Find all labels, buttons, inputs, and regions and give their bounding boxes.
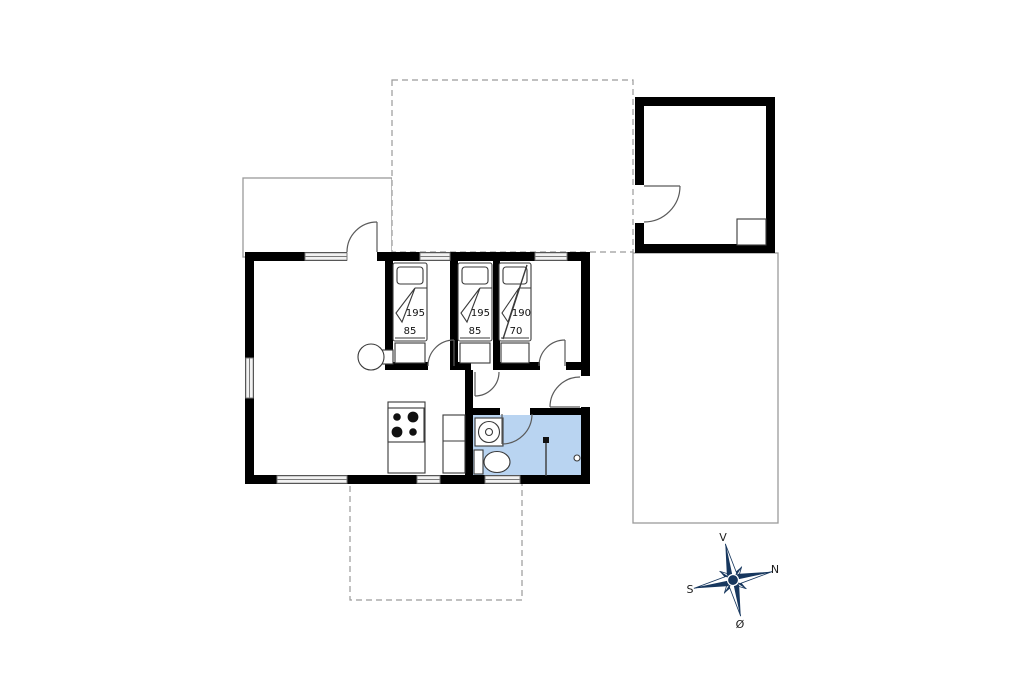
bed1-width-label: 85: [404, 326, 417, 337]
bed-pillow: [462, 267, 488, 284]
washbasin-icon: [475, 418, 503, 446]
terrace-east: [633, 253, 778, 523]
bed-3: 190 70: [499, 263, 531, 363]
annex-wall-west: [635, 97, 644, 253]
cooktop-icon: [388, 408, 424, 442]
kitchen: [388, 402, 465, 473]
annex-door-opening: [634, 185, 645, 223]
bed-pillow: [397, 267, 423, 284]
bed-footboard: [501, 343, 529, 363]
bedroom2-door: [475, 372, 499, 396]
compass-label-west: V: [719, 531, 727, 544]
bed2-length-label: 195: [471, 308, 490, 319]
bed-1: 195 85: [393, 263, 427, 363]
annex-wall-north: [635, 97, 775, 106]
terrace-northwest: [243, 178, 392, 257]
bathroom-door-opening: [500, 408, 530, 415]
floor-drain-icon: [574, 455, 580, 461]
compass-rose: V N S Ø: [686, 531, 780, 631]
compass-label-north: N: [771, 563, 779, 576]
floor-plan-canvas: 195 85 195 85 190 70: [0, 0, 1024, 682]
bed-2: 195 85: [458, 263, 492, 363]
wall-bedroom-south-d: [566, 362, 590, 370]
terrace-south-dashed: [350, 482, 522, 600]
bed-footboard: [460, 343, 490, 363]
entrance-door-opening: [581, 376, 590, 407]
compass-label-east: Ø: [736, 618, 745, 631]
toilet-icon: [474, 450, 510, 474]
terrace-door-opening: [347, 252, 377, 261]
terrace-north-dashed: [392, 80, 633, 252]
bed3-length-label: 190: [512, 308, 531, 319]
bed3-width-label: 70: [510, 326, 523, 337]
annex-door: [644, 186, 680, 222]
kitchen-counter-right: [443, 415, 465, 473]
bedroom3-door: [539, 340, 565, 366]
floor-plan-drawing: 195 85 195 85 190 70: [0, 0, 1024, 682]
annex-wall-east: [766, 97, 775, 253]
entrance-door: [550, 377, 580, 407]
annex-cabinet: [737, 219, 766, 245]
bed1-length-label: 195: [406, 308, 425, 319]
bed-footboard: [395, 343, 425, 363]
compass-label-south: S: [687, 583, 694, 596]
wall-bathroom-west: [465, 370, 473, 475]
bed2-width-label: 85: [469, 326, 482, 337]
